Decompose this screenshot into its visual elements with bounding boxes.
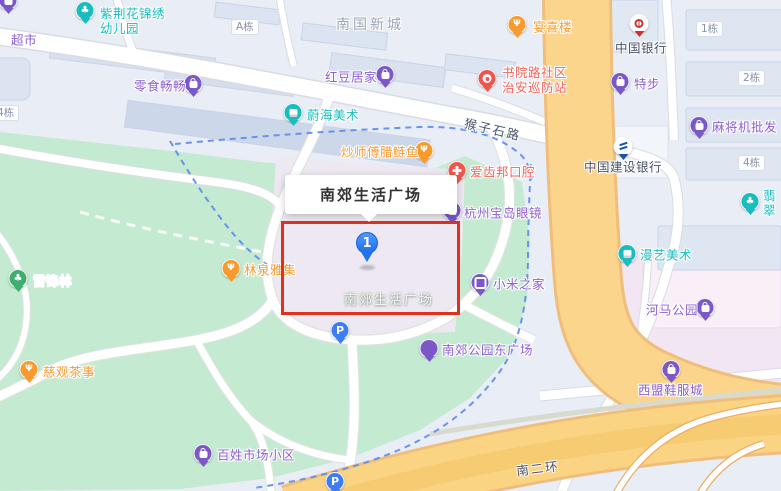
lingshi-changchang-label[interactable]: 零食畅畅 — [134, 79, 186, 94]
mahjong-wholesale-marker[interactable] — [690, 116, 709, 135]
hongdou-home-label[interactable]: 红豆居家 — [325, 70, 377, 85]
ccb-icon — [618, 141, 628, 151]
cross-icon — [453, 166, 462, 175]
bag-icon — [189, 81, 197, 88]
hema-park-marker[interactable] — [696, 298, 715, 317]
bag-icon — [381, 72, 389, 79]
book-icon — [623, 249, 631, 257]
bag-icon — [695, 123, 703, 130]
nanjiao-park-east-square-label[interactable]: 南郊公园东广场 — [442, 343, 533, 358]
building-label-2: 2栋 — [738, 70, 765, 86]
parking-south-marker[interactable]: P — [326, 472, 345, 491]
nanjiao-park-east-square-marker[interactable] — [420, 339, 439, 358]
mi-home-label[interactable]: 小米之家 — [493, 277, 545, 292]
bag-icon — [701, 305, 709, 312]
chaoshifu-lalianyu-label[interactable]: 炒师傅腊鲢鱼 — [341, 145, 419, 160]
square-icon — [474, 276, 486, 288]
building-label-1: 1栋 — [696, 21, 723, 37]
baodao-glasses-label[interactable]: 杭州宝岛眼镜 — [464, 206, 542, 221]
boc-icon — [635, 19, 644, 28]
info-box[interactable]: 南郊生活广场 — [285, 175, 457, 214]
feicui-marker[interactable]: ♣ — [741, 192, 760, 211]
linquan-yaji-marker[interactable]: Ψ — [222, 259, 241, 278]
aichibang-dental-label[interactable]: 爱齿邦口腔 — [470, 165, 535, 180]
ccb-bank-marker[interactable] — [614, 137, 633, 156]
feicui-label[interactable]: 翡翠 — [763, 188, 781, 218]
p-icon: P — [331, 476, 339, 487]
marker-shadow — [360, 265, 375, 270]
ciguan-tea-label[interactable]: 慈观茶事 — [43, 365, 95, 380]
building-label-3: 4栋 — [738, 155, 765, 171]
zijinghua-kindergarten-marker[interactable]: ♣ — [76, 1, 95, 20]
tree-icon: ♣ — [81, 5, 90, 15]
weihai-art-label[interactable]: 蔚海美术 — [307, 108, 359, 123]
result-marker-1[interactable]: 1 — [356, 232, 378, 254]
yanxilou-label[interactable]: 宴喜楼 — [533, 20, 572, 35]
baixing-market-estate-marker[interactable] — [194, 444, 213, 463]
badge-icon — [483, 74, 492, 83]
book-icon — [289, 108, 297, 116]
bag-icon — [4, 0, 12, 5]
map-viewport[interactable]: 南郊生活广场 超市♣紫荆花锦绣 幼儿园零食畅畅红豆居家Ψ宴喜楼中国银行蔚海美术Ψ… — [0, 0, 781, 491]
supermarket-label[interactable]: 超市 — [11, 33, 37, 48]
hongdou-home-marker[interactable] — [376, 65, 395, 84]
xtep-label[interactable]: 特步 — [634, 77, 660, 92]
bank-of-china-marker[interactable] — [630, 14, 649, 33]
weihai-art-marker[interactable] — [284, 103, 303, 122]
info-box-title: 南郊生活广场 — [320, 184, 422, 205]
marker-number: 1 — [362, 236, 371, 251]
ximeng-shoes-city-label[interactable]: 西盟鞋服城 — [638, 383, 703, 398]
xtep-marker[interactable] — [611, 72, 630, 91]
ccb-bank-label[interactable]: 中国建设银行 — [584, 160, 662, 175]
baixing-market-estate-label[interactable]: 百姓市场小区 — [217, 448, 295, 463]
ximeng-shoes-city-marker[interactable] — [662, 360, 681, 379]
p-icon: P — [336, 325, 344, 336]
shuyuan-patrol-station-label[interactable]: 书院路社区 治安巡防站 — [502, 65, 567, 95]
bag-icon — [616, 79, 624, 86]
hema-park-label[interactable]: 河马公园 — [646, 303, 698, 318]
mi-home-marker[interactable] — [471, 273, 490, 292]
leifeng-forest-marker[interactable]: ♣ — [9, 269, 28, 288]
tree-icon: ♣ — [14, 273, 23, 283]
shuyuan-patrol-station-marker[interactable] — [478, 69, 497, 88]
fork-icon: Ψ — [227, 264, 235, 273]
yanxilou-marker[interactable]: Ψ — [508, 15, 527, 34]
lingshi-changchang-marker[interactable] — [184, 74, 203, 93]
building-label-4: 4栋 — [0, 105, 19, 121]
zijinghua-kindergarten-label[interactable]: 紫荆花锦绣 幼儿园 — [100, 6, 165, 36]
ciguan-tea-marker[interactable]: Ψ — [20, 360, 39, 379]
manyi-art-marker[interactable] — [618, 244, 637, 263]
mahjong-wholesale-label[interactable]: 麻将机批发 — [712, 120, 777, 135]
area-label-0: 南国新城 — [336, 14, 404, 34]
parking-plaza-marker[interactable]: P — [331, 321, 350, 340]
fork-icon: Ψ — [25, 365, 33, 374]
tree-icon: ♣ — [746, 196, 755, 206]
building-label-0: A栋 — [231, 19, 259, 35]
bag-icon — [199, 451, 207, 458]
bank-of-china-label[interactable]: 中国银行 — [615, 41, 667, 56]
manyi-art-label[interactable]: 漫艺美术 — [640, 248, 692, 263]
fork-icon: Ψ — [420, 146, 428, 155]
fork-icon: Ψ — [513, 20, 521, 29]
bag-icon — [667, 367, 675, 374]
leifeng-forest-label[interactable]: 雷锋林 — [33, 274, 72, 289]
